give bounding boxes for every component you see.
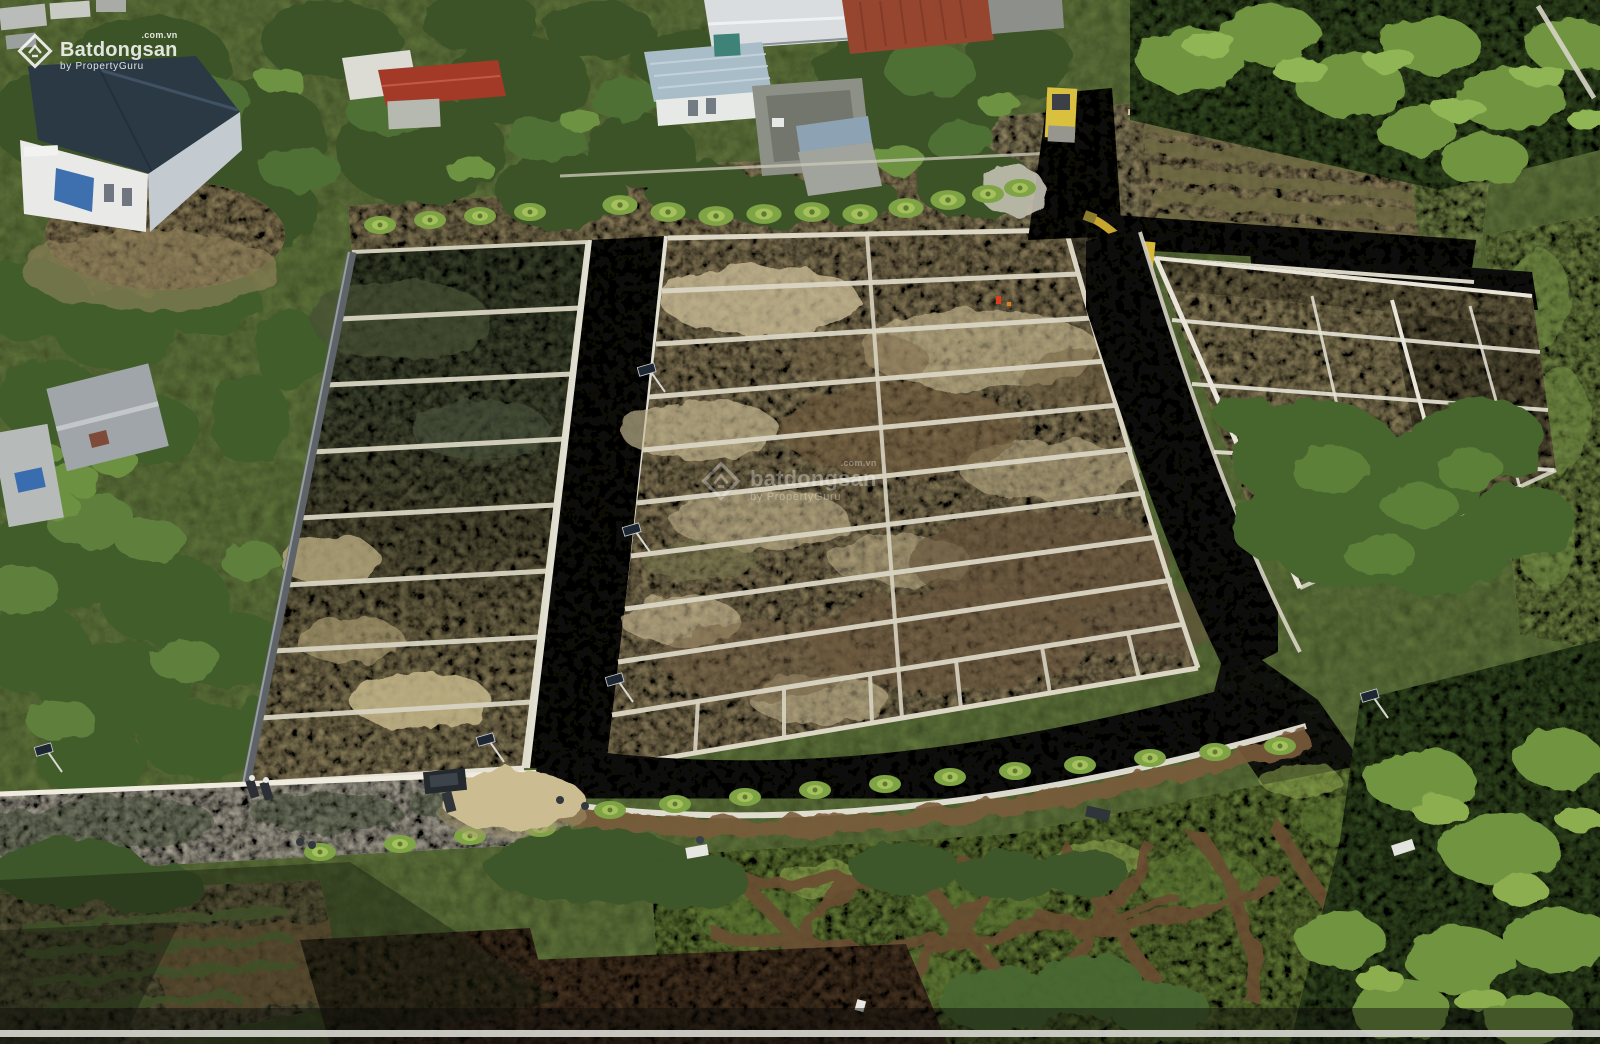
video-progress-bar[interactable] xyxy=(0,1030,1600,1037)
parked-car xyxy=(423,768,467,794)
survey-flag xyxy=(996,296,1001,304)
video-overlay-shade xyxy=(0,1008,1600,1044)
aerial-photo xyxy=(0,0,1600,1044)
road-roller xyxy=(1045,87,1078,142)
teal-shed xyxy=(713,33,740,56)
aerial-photo-stage: .com.vn Batdongsan by PropertyGuru .com.… xyxy=(0,0,1600,1044)
house-metal-roof xyxy=(644,42,772,126)
